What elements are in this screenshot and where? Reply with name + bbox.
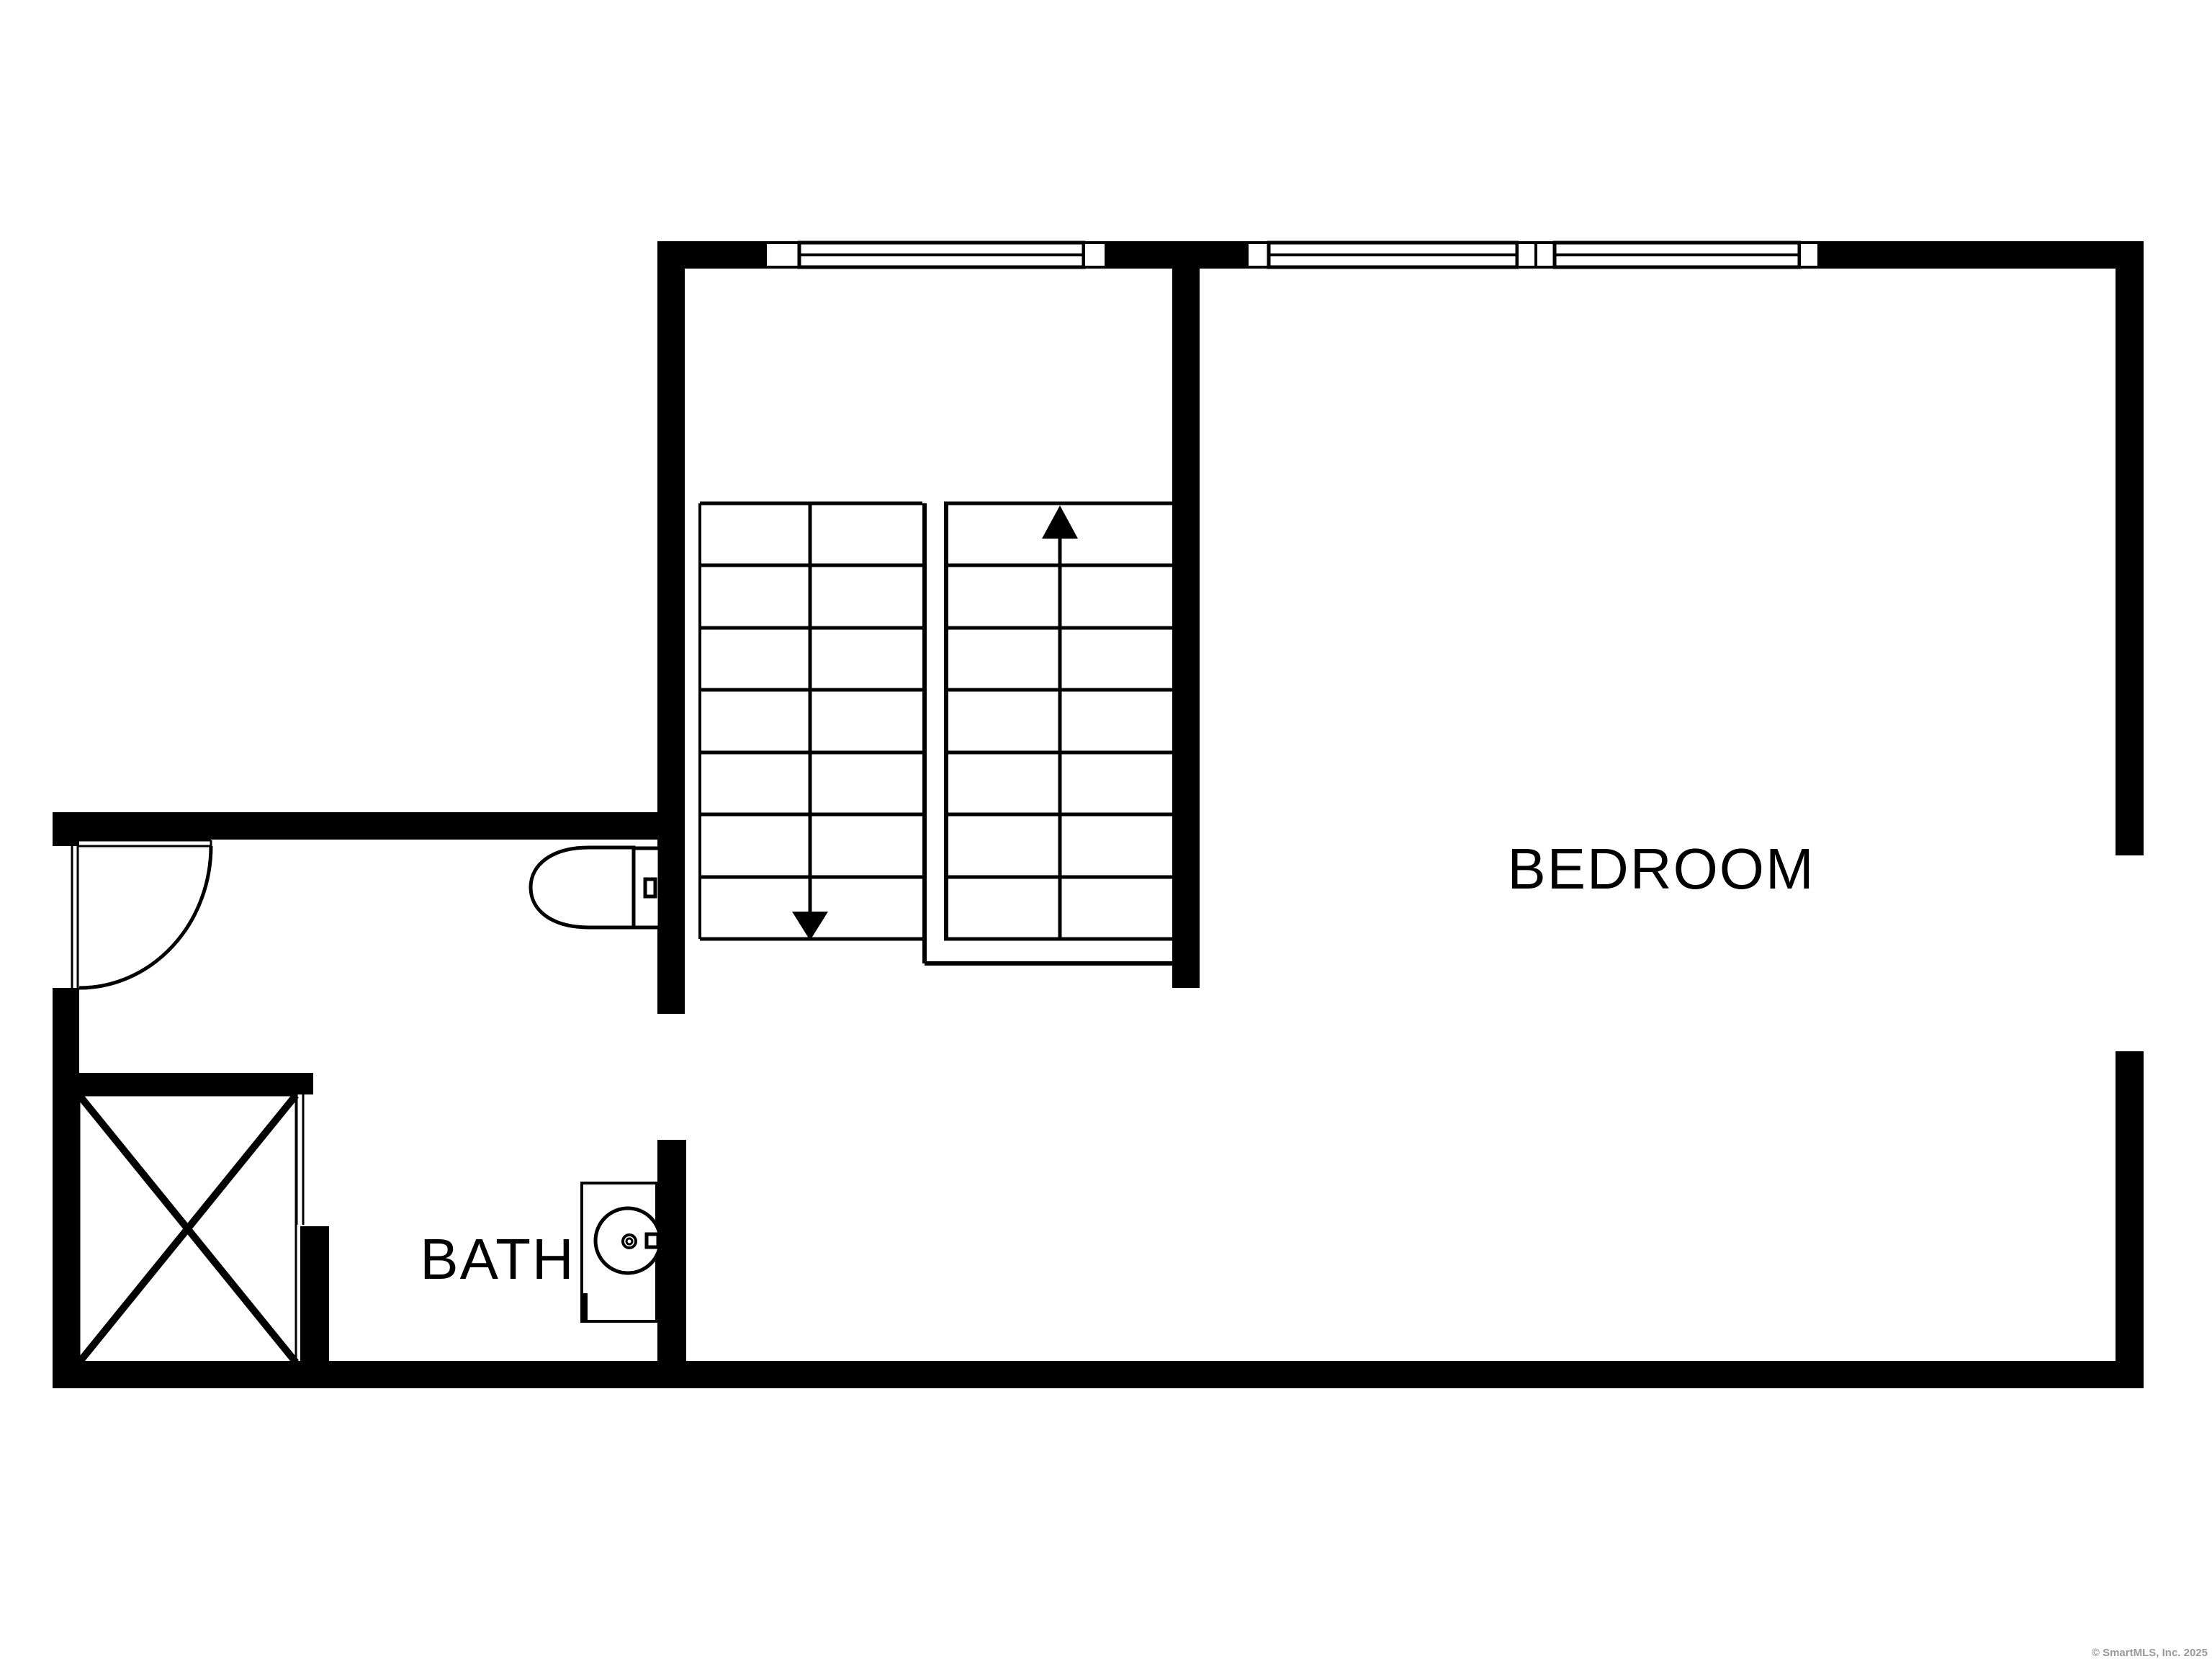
wall-stair-bedroom [1172,269,1200,988]
sink-faucet [647,1234,658,1247]
wall-top-east [1819,241,2144,269]
wall-right-upper [2116,269,2144,855]
floor-plan-drawing: BEDROOM BATH © SmartMLS, Inc. 2025 [0,0,2212,1659]
bath-door [72,840,211,988]
wall-bath-top [53,812,657,840]
wall-right-lower [2116,1051,2144,1388]
windows [765,243,1819,267]
wall-bottom [53,1361,2144,1388]
window-bedroom-pair [1247,243,1819,267]
door-swing-arc [79,846,211,988]
window-stair-hall [765,243,1106,267]
wall-shower-top [53,1073,313,1094]
window-jamb [1247,243,1269,267]
window-jamb [1517,243,1536,267]
bath-label: BATH [420,1227,575,1291]
wall-shower-stub [300,1226,329,1363]
watermark: © SmartMLS, Inc. 2025 [2092,1647,2208,1659]
stair-up-arrow-icon [1042,505,1078,539]
window-jamb [765,243,799,267]
shower [79,1093,303,1362]
window-jamb [1536,243,1555,267]
staircase [700,503,1172,963]
wall-top-mid [1106,241,1247,269]
wall-stair-west [657,241,685,1014]
window-jamb [1084,243,1106,267]
floor-plan-page: BEDROOM BATH © SmartMLS, Inc. 2025 [0,0,2212,1659]
stair-down-arrow-icon [792,912,828,940]
toilet [531,848,660,927]
wall-bath-west-upper [53,812,79,846]
stair-divider [925,503,946,963]
sink-vanity-hinge [580,1293,588,1321]
bedroom-label: BEDROOM [1507,837,1815,901]
toilet-flush-button [645,879,655,896]
wall-bath-east [657,1140,686,1388]
sink [580,1183,660,1321]
toilet-bowl [531,848,634,927]
window-jamb [1799,243,1819,267]
wall-bath-west-lower [53,988,79,1388]
